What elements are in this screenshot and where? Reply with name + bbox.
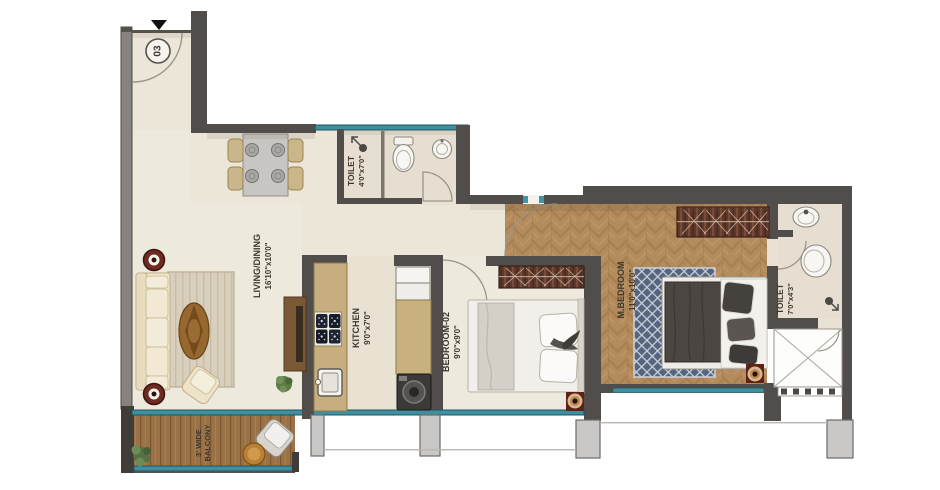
svg-text:LIVING/DINING: LIVING/DINING: [252, 234, 262, 298]
svg-text:TOILET: TOILET: [346, 155, 356, 186]
svg-text:16'10"x10'0": 16'10"x10'0": [264, 242, 273, 289]
svg-text:9'0"x7'0": 9'0"x7'0": [363, 311, 372, 345]
svg-text:BALCONY: BALCONY: [203, 424, 212, 461]
svg-text:03: 03: [153, 45, 164, 57]
svg-text:11'0"x10'0": 11'0"x10'0": [628, 269, 637, 311]
svg-text:KITCHEN: KITCHEN: [351, 308, 361, 348]
svg-text:3' WIDE: 3' WIDE: [194, 429, 203, 457]
svg-text:TOILET: TOILET: [775, 283, 785, 314]
svg-text:4'0"x7'0": 4'0"x7'0": [357, 155, 366, 187]
svg-text:7'0"x4'3": 7'0"x4'3": [786, 283, 795, 315]
svg-text:BEDROOM-02: BEDROOM-02: [441, 312, 451, 372]
svg-text:9'0"x9'0": 9'0"x9'0": [453, 325, 462, 359]
svg-text:M.BEDROOM: M.BEDROOM: [616, 262, 626, 319]
